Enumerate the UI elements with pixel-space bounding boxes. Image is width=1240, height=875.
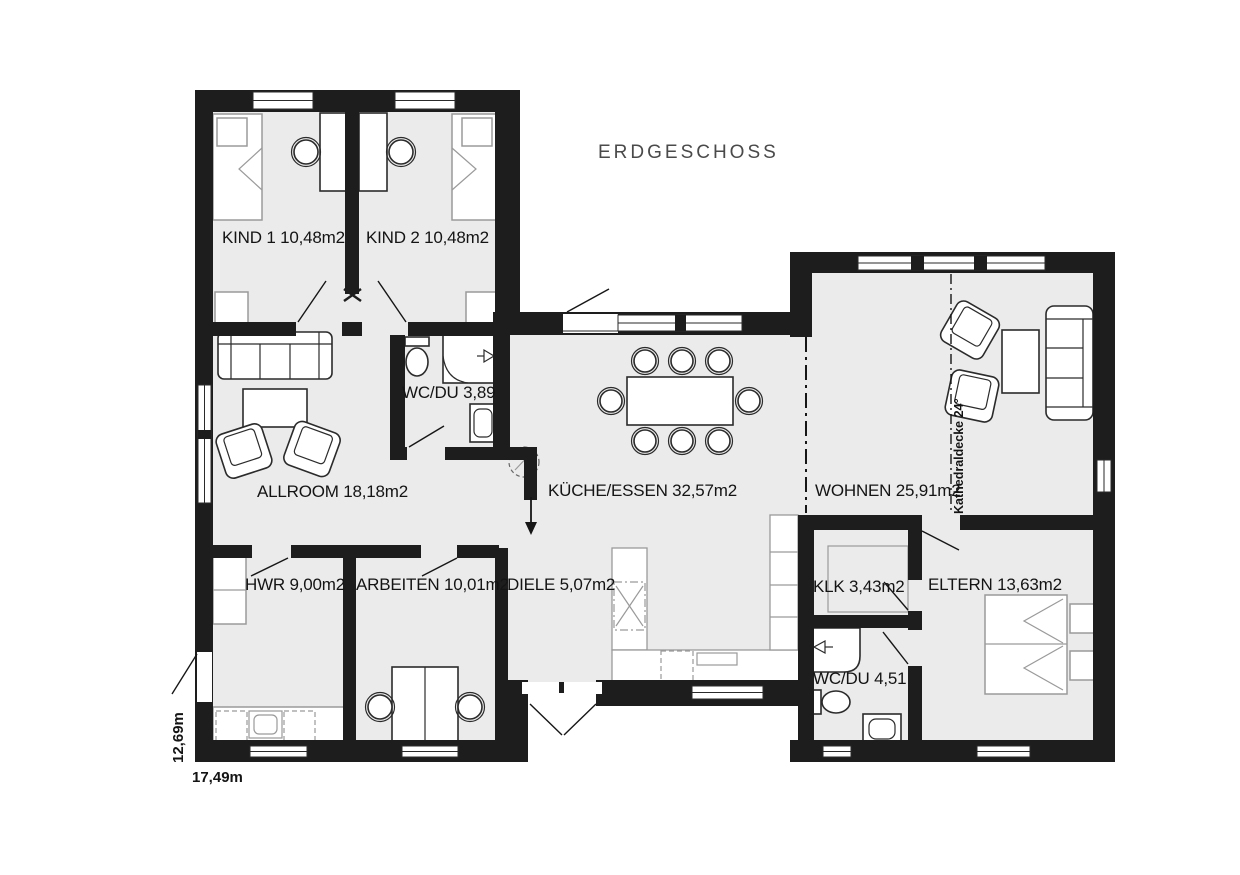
sofa xyxy=(1046,306,1093,420)
coffee-table xyxy=(1002,330,1039,393)
terrace-door-opening xyxy=(563,314,618,333)
door-swing xyxy=(567,289,609,312)
window-mullion xyxy=(911,256,924,270)
room-label-wohnen: WOHNEN 25,91m2 xyxy=(815,481,961,500)
counter-bottom xyxy=(612,650,808,682)
dining-table xyxy=(627,377,733,425)
door-jamb xyxy=(596,682,602,694)
door-post xyxy=(559,682,564,693)
desk xyxy=(320,113,348,191)
room-label-kind2: KIND 2 10,48m2 xyxy=(366,228,489,247)
toilet xyxy=(822,691,850,713)
floor-plan-page: ERDGESCHOSS KIND 1 10,48m2 KIND 2 10,48m… xyxy=(0,0,1240,875)
room-label-arbeiten: ARBEITEN 10,01m2 xyxy=(356,575,509,594)
counter-left xyxy=(612,548,647,650)
dimension-height: 12,69m xyxy=(170,712,187,763)
room-label-kueche: KÜCHE/ESSEN 32,57m2 xyxy=(548,481,737,500)
room-label-klk: KLK 3,43m2 xyxy=(813,577,905,596)
entry-door-swing xyxy=(530,704,596,735)
ceiling-annotation: Kathedraldecke 24° xyxy=(952,399,966,514)
page-title: ERDGESCHOSS xyxy=(598,142,779,163)
door-jamb xyxy=(522,682,528,694)
desk xyxy=(359,113,387,191)
window-mullion xyxy=(198,430,211,439)
chair xyxy=(294,140,318,164)
chair xyxy=(389,140,413,164)
shower xyxy=(443,335,495,383)
window-mullion xyxy=(974,256,987,270)
room-label-allroom: ALLROOM 18,18m2 xyxy=(257,482,408,501)
dimension-width: 17,49m xyxy=(192,769,243,786)
window-mullion xyxy=(675,315,686,331)
worktop xyxy=(213,707,344,745)
pillow xyxy=(462,118,492,146)
door-swing xyxy=(172,654,197,694)
coffee-table xyxy=(243,389,307,427)
sofa xyxy=(218,332,332,379)
room-label-wcdu-upper: WC/DU 3,89 xyxy=(402,383,495,402)
nightstand xyxy=(1070,651,1094,680)
toilet xyxy=(406,348,428,376)
floor-plan-drawing: ERDGESCHOSS KIND 1 10,48m2 KIND 2 10,48m… xyxy=(0,0,1240,875)
room-label-eltern: ELTERN 13,63m2 xyxy=(928,575,1062,594)
room-label-hwr: HWR 9,00m2 xyxy=(245,575,345,594)
room-label-diele: DIELE 5,07m2 xyxy=(507,575,615,594)
toilet-tank xyxy=(405,337,429,346)
room-label-wcdu-lower: WC/DU 4,51 xyxy=(813,669,906,688)
door-opening xyxy=(197,652,212,702)
nightstand xyxy=(1070,604,1094,633)
counter-right xyxy=(770,515,798,650)
pillow xyxy=(217,118,247,146)
room-label-kind1: KIND 1 10,48m2 xyxy=(222,228,345,247)
